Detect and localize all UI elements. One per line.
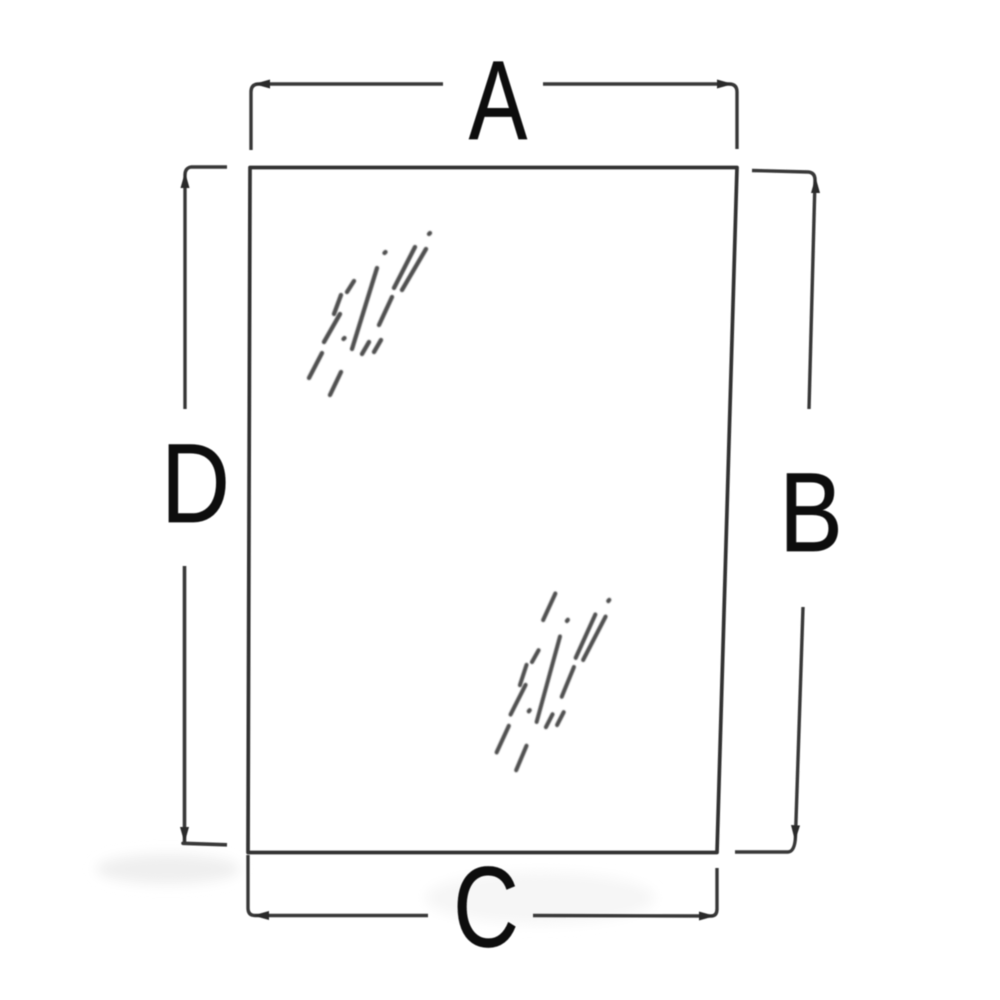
svg-text:A: A [469, 39, 527, 164]
svg-text:D: D [161, 422, 230, 547]
svg-text:C: C [453, 844, 518, 971]
svg-text:B: B [779, 451, 842, 576]
